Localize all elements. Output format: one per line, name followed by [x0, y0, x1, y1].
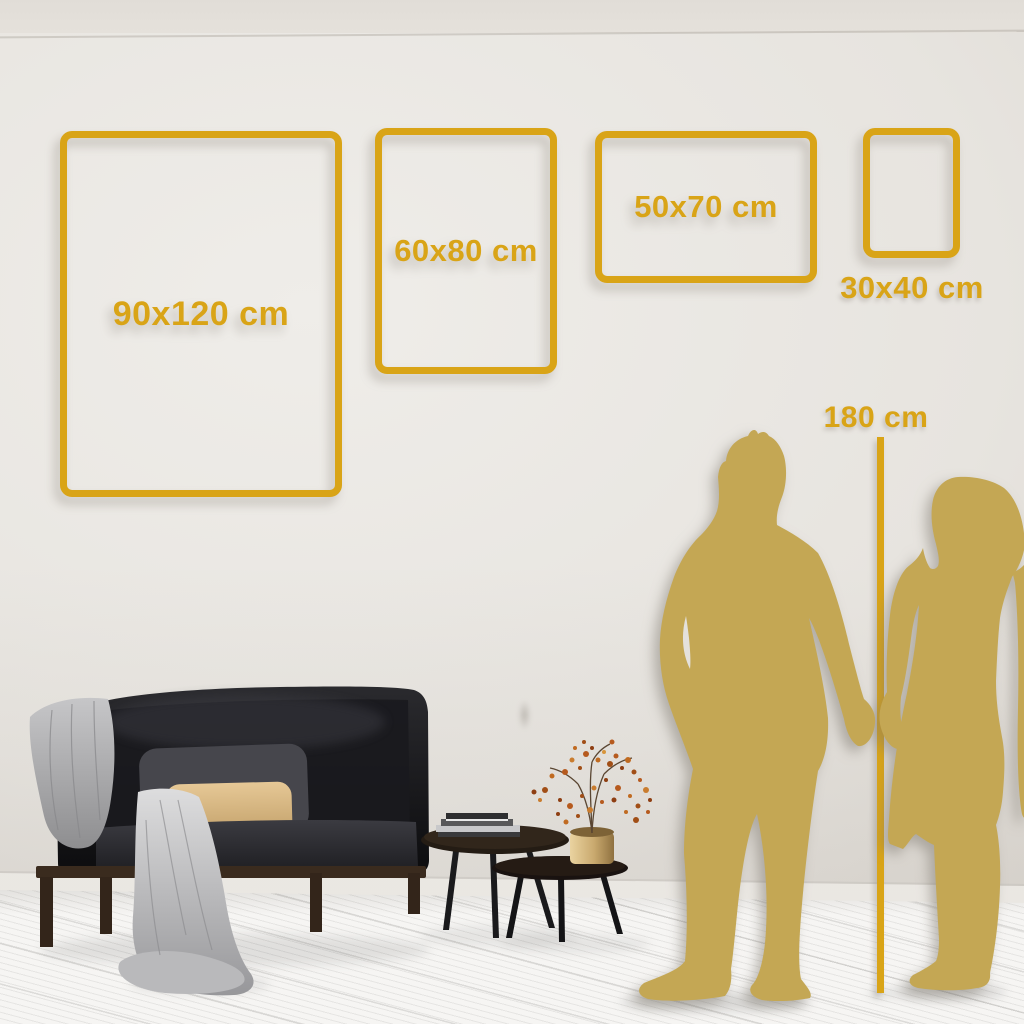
poster-size-guide-mockup: 90x120 cm 60x80 cm 50x70 cm 30x40 cm 180… — [0, 0, 1024, 1024]
nesting-coffee-tables — [421, 740, 652, 943]
branch-berries — [532, 740, 653, 825]
size-frame-90x120: 90x120 cm — [60, 131, 342, 497]
woman-silhouette — [879, 477, 1024, 990]
sofa-rail — [36, 866, 426, 878]
size-frame-90x120-label: 90x120 cm — [113, 295, 290, 334]
size-frame-30x40 — [863, 128, 960, 258]
size-frame-30x40-label: 30x40 cm — [836, 270, 988, 306]
sofa-leg — [40, 877, 53, 947]
size-frame-50x70: 50x70 cm — [595, 131, 817, 283]
sofa-leg — [100, 877, 112, 934]
height-reference-label: 180 cm — [806, 401, 946, 435]
books-stack — [436, 813, 520, 837]
sofa-sheen — [105, 694, 385, 750]
table-leg — [558, 878, 565, 942]
size-frame-60x80: 60x80 cm — [375, 128, 557, 374]
table-leg — [600, 875, 623, 934]
man-silhouette — [639, 430, 875, 1001]
couple-silhouette — [639, 430, 1024, 1001]
table-leg — [443, 851, 459, 930]
size-frame-50x70-label: 50x70 cm — [634, 189, 778, 225]
size-frame-60x80-label: 60x80 cm — [394, 233, 538, 269]
sofa-leg — [408, 873, 420, 914]
sofa-leg — [310, 873, 322, 932]
